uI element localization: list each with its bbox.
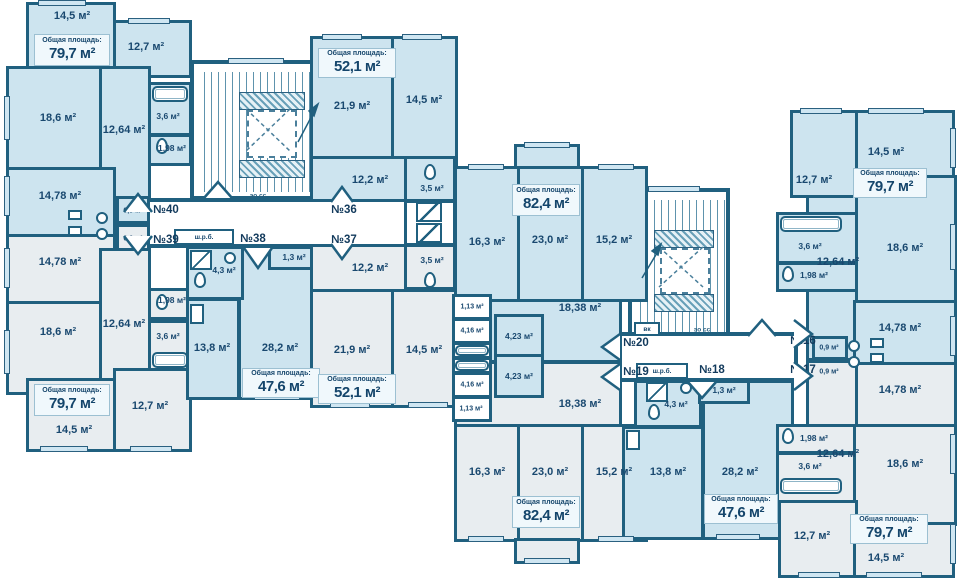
room-area-label: 0,9 м² <box>819 369 838 376</box>
apt-number-label: №40 <box>153 204 179 216</box>
room-area-label: 15,2 м² <box>596 466 632 478</box>
total-area-value: 52,1 м² <box>334 384 380 401</box>
room-area-label: 12,2 м² <box>352 174 388 186</box>
total-area-caption: Общая площадь: <box>42 387 102 395</box>
room-area-label: 1,3 м² <box>712 385 735 395</box>
room-area-label: 28,2 м² <box>262 342 298 354</box>
window <box>128 18 170 24</box>
apt17-room-18-6 <box>853 424 957 526</box>
stove-icon <box>870 353 884 363</box>
window <box>866 572 922 578</box>
shrb-label: ш.р.б. <box>195 234 214 241</box>
room-area-label: 12,7 м² <box>796 174 832 186</box>
room-area-label: 21,9 м² <box>334 344 370 356</box>
stair-core-label: эо сс <box>694 327 711 334</box>
window <box>868 108 924 114</box>
total-area-caption: Общая площадь: <box>859 516 919 524</box>
total-area-box: Общая площадь:82,4 м² <box>512 496 580 528</box>
total-area-value: 79,7 м² <box>866 524 912 541</box>
room-area-label: 4,16 м² <box>460 382 483 389</box>
room-area-label: 3,5 м² <box>420 183 443 193</box>
staircase-core-1 <box>190 60 322 200</box>
room-area-label: 1,98 м² <box>158 143 186 153</box>
total-area-caption: Общая площадь: <box>42 37 102 45</box>
bathtub-icon <box>780 478 842 494</box>
room-area-label: 18,6 м² <box>40 326 76 338</box>
window <box>524 142 570 148</box>
shower-icon <box>190 250 212 270</box>
window <box>716 534 760 540</box>
window <box>38 0 86 6</box>
total-area-value: 82,4 м² <box>523 195 569 212</box>
bathtub-icon <box>152 86 188 102</box>
elevator-shaft <box>247 110 297 158</box>
room-area-label: 0,9 м² <box>123 236 142 243</box>
room-area-label: 14,78 м² <box>879 322 921 334</box>
total-area-value: 47,6 м² <box>718 504 764 521</box>
total-area-box: Общая площадь:52,1 м² <box>318 48 396 78</box>
window <box>524 558 570 564</box>
total-area-box: Общая площадь:52,1 м² <box>318 374 396 404</box>
apt-number-label: №36 <box>331 204 357 216</box>
toilet-icon <box>648 404 660 420</box>
toilet-icon <box>782 428 794 444</box>
room-area-label: 18,6 м² <box>887 242 923 254</box>
room-area-label: 4,3 м² <box>212 265 235 275</box>
apt40-room-14-78 <box>6 167 116 237</box>
total-area-box: Общая площадь:79,7 м² <box>853 168 927 198</box>
washer-icon <box>96 228 108 240</box>
room-area-label: 18,6 м² <box>887 458 923 470</box>
stove-icon <box>68 210 82 220</box>
total-area-value: 79,7 м² <box>867 178 913 195</box>
total-area-caption: Общая площадь: <box>327 50 387 58</box>
room-area-label: 18,38 м² <box>559 302 601 314</box>
sink-icon <box>224 252 236 264</box>
window <box>598 164 634 170</box>
window <box>598 536 634 542</box>
shower-icon <box>416 202 442 222</box>
shower-icon <box>416 223 442 243</box>
sink-icon <box>680 382 692 394</box>
room-area-label: 1,98 м² <box>800 270 828 280</box>
total-area-value: 82,4 м² <box>523 507 569 524</box>
room-area-label: 3,6 м² <box>156 331 179 341</box>
total-area-value: 79,7 м² <box>49 45 95 62</box>
toilet-icon <box>424 272 436 288</box>
room-area-label: 28,2 м² <box>722 466 758 478</box>
room-area-label: 0,9 м² <box>819 345 838 352</box>
room-area-label: 23,0 м² <box>532 466 568 478</box>
total-area-box: Общая площадь:47,6 м² <box>704 494 778 524</box>
washer-icon <box>848 340 860 352</box>
total-area-box: Общая площадь:47,6 м² <box>242 368 320 398</box>
stove-icon <box>870 338 884 348</box>
bathtub-icon <box>455 345 489 356</box>
room-area-label: 1,13 м² <box>460 304 483 311</box>
room-area-label: 0,9 м² <box>123 208 142 215</box>
window <box>408 402 448 408</box>
toilet-icon <box>424 164 436 180</box>
room-area-label: 14,5 м² <box>406 94 442 106</box>
total-area-box: Общая площадь:79,7 м² <box>850 514 928 544</box>
elevator-hatch <box>239 160 305 178</box>
total-area-value: 79,7 м² <box>49 395 95 412</box>
total-area-box: Общая площадь:82,4 м² <box>512 184 580 216</box>
window <box>468 536 504 542</box>
stove-icon <box>68 226 82 236</box>
vk-label: вк <box>643 326 650 333</box>
shrb-box: ш.р.б. <box>174 229 234 245</box>
apt-number-label: №37 <box>331 234 357 246</box>
room-area-label: 3,6 м² <box>798 241 821 251</box>
window <box>4 330 10 374</box>
room-area-label: 12,64 м² <box>817 256 859 268</box>
total-area-caption: Общая площадь: <box>711 496 771 504</box>
room-area-label: 12,7 м² <box>794 530 830 542</box>
bathtub-icon <box>780 216 842 232</box>
window <box>950 128 956 168</box>
floor-plan: Общая площадь:79,7 м² Общая площадь:79,7… <box>0 0 962 580</box>
washer-icon <box>96 212 108 224</box>
room-area-label: 12,64 м² <box>103 124 145 136</box>
room-area-label: 13,8 м² <box>194 342 230 354</box>
room-area-label: 12,64 м² <box>817 448 859 460</box>
room-area-label: 14,78 м² <box>39 256 81 268</box>
room-area-label: 14,5 м² <box>56 424 92 436</box>
window <box>798 572 840 578</box>
window <box>800 108 842 114</box>
total-area-caption: Общая площадь: <box>327 376 387 384</box>
shrb-label: ш.р.б. <box>653 368 672 375</box>
room-area-label: 1,98 м² <box>800 433 828 443</box>
room-area-label: 16,3 м² <box>469 466 505 478</box>
window <box>322 34 362 40</box>
room-area-label: 3,5 м² <box>420 255 443 265</box>
apt-number-label: №16 <box>790 335 816 347</box>
total-area-caption: Общая площадь: <box>251 370 311 378</box>
room-area-label: 14,78 м² <box>39 190 81 202</box>
bathtub-icon <box>455 360 489 371</box>
room-area-label: 12,7 м² <box>128 41 164 53</box>
vk-box: вк <box>634 322 660 336</box>
room-area-label: 23,0 м² <box>532 234 568 246</box>
room-area-label: 14,5 м² <box>868 552 904 564</box>
room-area-label: 4,23 м² <box>505 371 533 381</box>
window <box>950 316 956 356</box>
window <box>40 446 88 452</box>
room-area-label: 16,3 м² <box>469 236 505 248</box>
bathtub-icon <box>152 352 188 368</box>
window <box>4 248 10 288</box>
room-area-label: 14,5 м² <box>868 146 904 158</box>
room-area-label: 1,13 м² <box>459 406 482 413</box>
room-area-label: 18,38 м² <box>559 398 601 410</box>
apt-number-label: №20 <box>623 337 649 349</box>
window <box>4 176 10 216</box>
elevator-hatch <box>239 92 305 110</box>
toilet-icon <box>782 266 794 282</box>
total-area-caption: Общая площадь: <box>860 170 920 178</box>
apt-number-label: №18 <box>699 364 725 376</box>
room-area-label: 14,78 м² <box>879 384 921 396</box>
elevator-hatch <box>654 294 714 312</box>
window <box>468 164 504 170</box>
total-area-value: 47,6 м² <box>258 378 304 395</box>
room-area-label: 13,8 м² <box>650 466 686 478</box>
room-area-label: 21,9 м² <box>334 100 370 112</box>
window <box>648 186 700 192</box>
room-area-label: 1,98 м² <box>158 295 186 305</box>
room-area-label: 12,2 м² <box>352 262 388 274</box>
total-area-value: 52,1 м² <box>334 58 380 75</box>
room-area-label: 4,23 м² <box>505 331 533 341</box>
room-area-label: 3,6 м² <box>156 111 179 121</box>
toilet-icon <box>194 272 206 288</box>
window <box>228 58 284 64</box>
room-area-label: 15,2 м² <box>596 234 632 246</box>
apt-number-label: №17 <box>790 364 816 376</box>
window <box>130 446 172 452</box>
stair-core-label: эо сс <box>250 193 267 200</box>
window <box>402 34 442 40</box>
stove-icon <box>626 430 640 450</box>
room-area-label: 4,16 м² <box>460 328 483 335</box>
washer-icon <box>848 356 860 368</box>
elevator-shaft <box>660 248 710 294</box>
room-area-label: 3,6 м² <box>798 461 821 471</box>
window <box>4 96 10 140</box>
apt-number-label: №19 <box>623 366 649 378</box>
room-area-label: 18,6 м² <box>40 112 76 124</box>
room-area-label: 1,3 м² <box>282 252 305 262</box>
room-area-label: 14,5 м² <box>406 344 442 356</box>
room-area-label: 12,7 м² <box>132 400 168 412</box>
total-area-caption: Общая площадь: <box>516 499 576 507</box>
total-area-box: Общая площадь:79,7 м² <box>34 34 110 66</box>
stove-icon <box>190 304 204 324</box>
window <box>950 524 956 564</box>
window <box>950 224 956 270</box>
window <box>950 434 956 474</box>
elevator-hatch <box>654 230 714 248</box>
room-area-label: 12,64 м² <box>103 318 145 330</box>
room-area-label: 4,3 м² <box>664 399 687 409</box>
room-area-label: 14,5 м² <box>54 10 90 22</box>
apt-number-label: №39 <box>153 234 179 246</box>
apt-number-label: №38 <box>240 233 266 245</box>
total-area-box: Общая площадь:79,7 м² <box>34 384 110 416</box>
total-area-caption: Общая площадь: <box>516 187 576 195</box>
